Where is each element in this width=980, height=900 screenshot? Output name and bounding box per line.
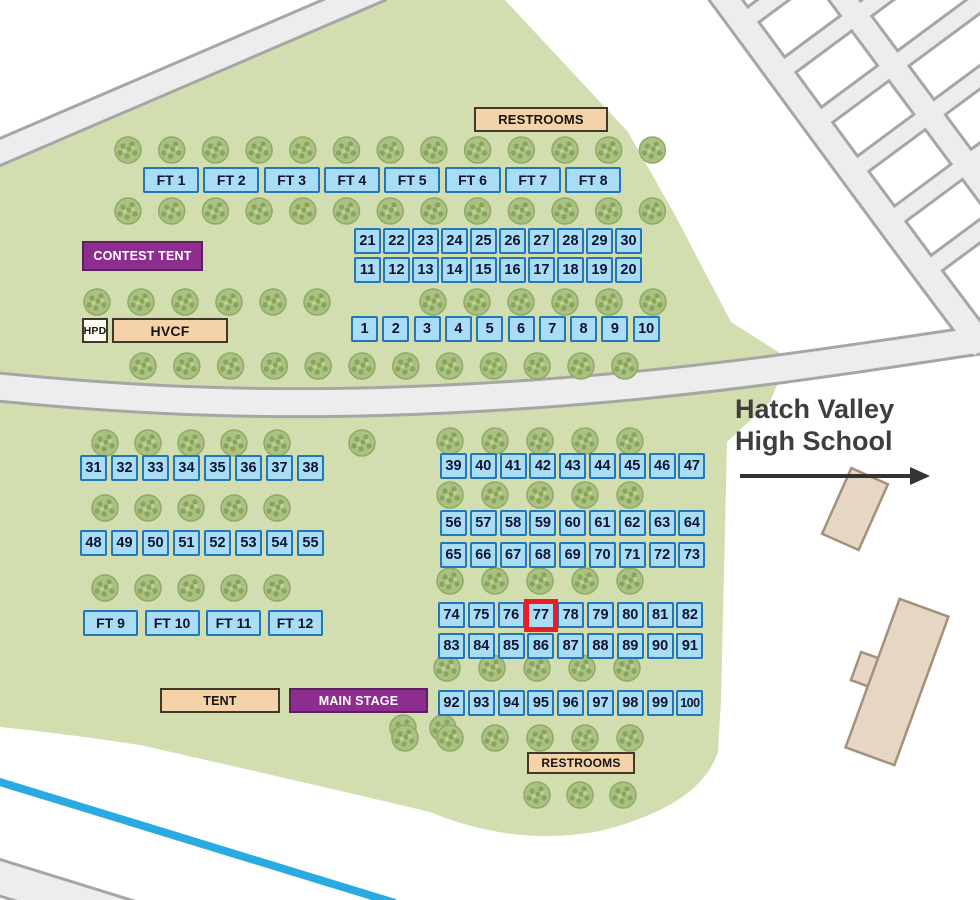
booth-77[interactable]: 77	[524, 599, 558, 632]
booth-2[interactable]: 2	[382, 316, 409, 342]
booth-69[interactable]: 69	[559, 542, 586, 568]
booth-56[interactable]: 56	[440, 510, 467, 536]
booth-36[interactable]: 36	[235, 455, 262, 481]
booth-62[interactable]: 62	[619, 510, 646, 536]
booth-65[interactable]: 65	[440, 542, 467, 568]
booth-60[interactable]: 60	[559, 510, 586, 536]
booth-95[interactable]: 95	[527, 690, 554, 716]
booth-26[interactable]: 26	[499, 228, 526, 254]
booth-97[interactable]: 97	[587, 690, 614, 716]
festival-map: Hatch Valley High School RESTROOMSCONTES…	[0, 0, 980, 900]
booth-38[interactable]: 38	[297, 455, 324, 481]
booth-63[interactable]: 63	[649, 510, 676, 536]
booth-43[interactable]: 43	[559, 453, 586, 479]
booth-33[interactable]: 33	[142, 455, 169, 481]
booth-8[interactable]: 8	[570, 316, 597, 342]
booth-22[interactable]: 22	[383, 228, 410, 254]
booth-93[interactable]: 93	[468, 690, 495, 716]
booth-51[interactable]: 51	[173, 530, 200, 556]
booth-27[interactable]: 27	[528, 228, 555, 254]
booth-55[interactable]: 55	[297, 530, 324, 556]
booth-79[interactable]: 79	[587, 602, 614, 628]
booth-7[interactable]: 7	[539, 316, 566, 342]
booth-35[interactable]: 35	[204, 455, 231, 481]
booth-47[interactable]: 47	[678, 453, 705, 479]
booth-6[interactable]: 6	[508, 316, 535, 342]
booth-66[interactable]: 66	[470, 542, 497, 568]
booth-16[interactable]: 16	[499, 257, 526, 283]
booth-83[interactable]: 83	[438, 633, 465, 659]
booth-41[interactable]: 41	[500, 453, 527, 479]
booth-49[interactable]: 49	[111, 530, 138, 556]
booth-28[interactable]: 28	[557, 228, 584, 254]
booth-89[interactable]: 89	[617, 633, 644, 659]
booth-15[interactable]: 15	[470, 257, 497, 283]
high-school-label-line2: High School	[735, 426, 894, 458]
booth-70[interactable]: 70	[589, 542, 616, 568]
booth-30[interactable]: 30	[615, 228, 642, 254]
booth-12[interactable]: 12	[383, 257, 410, 283]
booth-5[interactable]: 5	[476, 316, 503, 342]
booth-13[interactable]: 13	[412, 257, 439, 283]
booth-92[interactable]: 92	[438, 690, 465, 716]
booth-46[interactable]: 46	[649, 453, 676, 479]
booth-59[interactable]: 59	[529, 510, 556, 536]
booth-71[interactable]: 71	[619, 542, 646, 568]
booth-14[interactable]: 14	[441, 257, 468, 283]
booth-78[interactable]: 78	[557, 602, 584, 628]
booth-42[interactable]: 42	[529, 453, 556, 479]
booth-3[interactable]: 3	[414, 316, 441, 342]
booth-74[interactable]: 74	[438, 602, 465, 628]
booth-81[interactable]: 81	[647, 602, 674, 628]
booth-48[interactable]: 48	[80, 530, 107, 556]
booth-90[interactable]: 90	[647, 633, 674, 659]
booth-75[interactable]: 75	[468, 602, 495, 628]
booth-1[interactable]: 1	[351, 316, 378, 342]
booth-80[interactable]: 80	[617, 602, 644, 628]
booth-37[interactable]: 37	[266, 455, 293, 481]
booth-23[interactable]: 23	[412, 228, 439, 254]
booth-18[interactable]: 18	[557, 257, 584, 283]
booth-45[interactable]: 45	[619, 453, 646, 479]
booth-88[interactable]: 88	[587, 633, 614, 659]
booth-68[interactable]: 68	[529, 542, 556, 568]
booth-40[interactable]: 40	[470, 453, 497, 479]
booth-34[interactable]: 34	[173, 455, 200, 481]
booth-32[interactable]: 32	[111, 455, 138, 481]
booth-99[interactable]: 99	[647, 690, 674, 716]
booth-10[interactable]: 10	[633, 316, 660, 342]
booth-76[interactable]: 76	[498, 602, 525, 628]
booth-31[interactable]: 31	[80, 455, 107, 481]
booth-24[interactable]: 24	[441, 228, 468, 254]
booth-58[interactable]: 58	[500, 510, 527, 536]
booth-96[interactable]: 96	[557, 690, 584, 716]
booth-87[interactable]: 87	[557, 633, 584, 659]
booth-4[interactable]: 4	[445, 316, 472, 342]
booth-86[interactable]: 86	[527, 633, 554, 659]
booth-44[interactable]: 44	[589, 453, 616, 479]
booth-82[interactable]: 82	[676, 602, 703, 628]
booth-53[interactable]: 53	[235, 530, 262, 556]
booth-57[interactable]: 57	[470, 510, 497, 536]
booth-98[interactable]: 98	[617, 690, 644, 716]
booth-19[interactable]: 19	[586, 257, 613, 283]
booth-17[interactable]: 17	[528, 257, 555, 283]
booth-25[interactable]: 25	[470, 228, 497, 254]
booth-73[interactable]: 73	[678, 542, 705, 568]
high-school-label: Hatch Valley High School	[735, 394, 894, 458]
booth-54[interactable]: 54	[266, 530, 293, 556]
booth-84[interactable]: 84	[468, 633, 495, 659]
booth-21[interactable]: 21	[354, 228, 381, 254]
booth-11[interactable]: 11	[354, 257, 381, 283]
booth-20[interactable]: 20	[615, 257, 642, 283]
booth-85[interactable]: 85	[498, 633, 525, 659]
booth-100[interactable]: 100	[676, 690, 703, 716]
booth-9[interactable]: 9	[601, 316, 628, 342]
high-school-label-line1: Hatch Valley	[735, 394, 894, 426]
booth-50[interactable]: 50	[142, 530, 169, 556]
booth-91[interactable]: 91	[676, 633, 703, 659]
booth-61[interactable]: 61	[589, 510, 616, 536]
booth-72[interactable]: 72	[649, 542, 676, 568]
booth-52[interactable]: 52	[204, 530, 231, 556]
booth-29[interactable]: 29	[586, 228, 613, 254]
booth-94[interactable]: 94	[498, 690, 525, 716]
booth-64[interactable]: 64	[678, 510, 705, 536]
booth-39[interactable]: 39	[440, 453, 467, 479]
booth-67[interactable]: 67	[500, 542, 527, 568]
